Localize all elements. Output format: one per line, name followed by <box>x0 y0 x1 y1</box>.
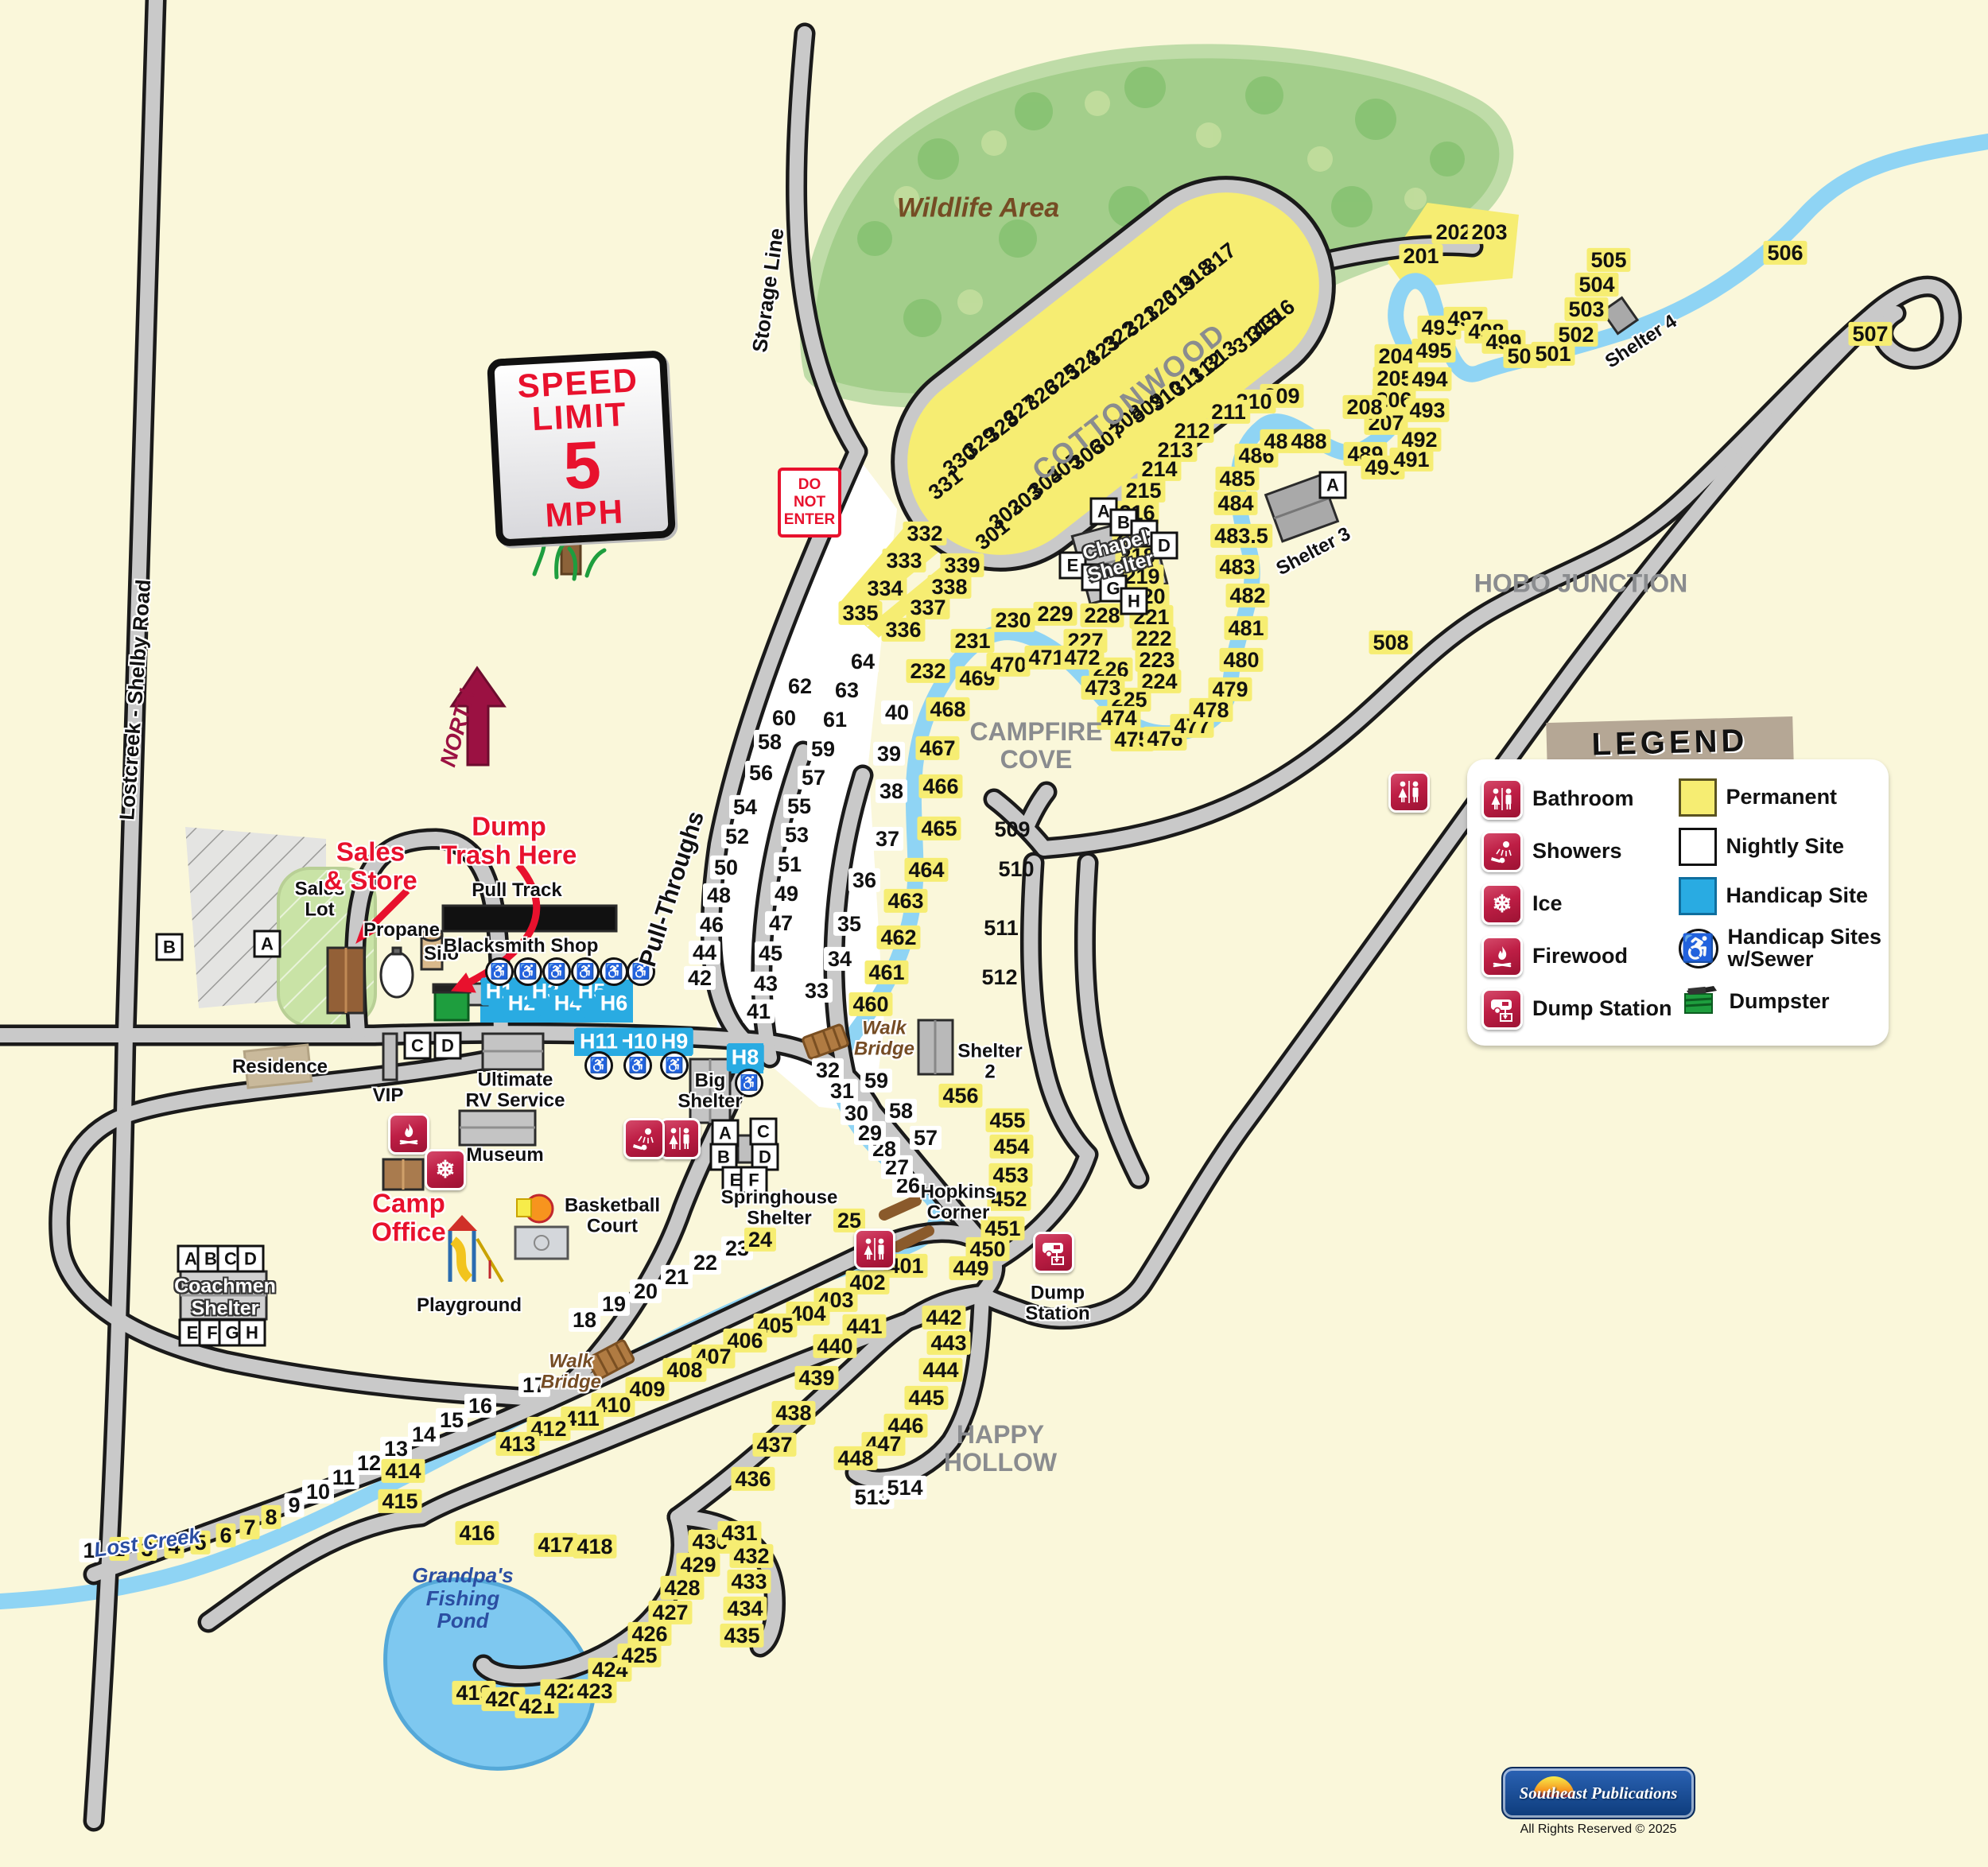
site-35: 35 <box>833 912 865 936</box>
ice-icon: ❄ <box>1481 883 1523 925</box>
site-16: 16 <box>464 1394 496 1418</box>
site-425: 425 <box>617 1644 661 1667</box>
marker-D: D <box>1151 532 1178 560</box>
handicap-icon: ♿ <box>1679 929 1718 968</box>
label-hopkins-corner: Hopkins Corner <box>921 1182 996 1225</box>
label-campfire-cove: CAMPFIRE COVE <box>969 718 1102 774</box>
dumpstation-icon <box>1033 1232 1074 1273</box>
site-485: 485 <box>1215 467 1259 491</box>
site-503: 503 <box>1564 297 1608 321</box>
site-423: 423 <box>573 1679 616 1703</box>
bathroom-icon <box>1481 778 1523 820</box>
site-334: 334 <box>863 576 907 600</box>
site-37: 37 <box>872 827 903 851</box>
site-506: 506 <box>1763 241 1807 265</box>
wheelchair-icon: ♿ <box>542 957 571 986</box>
site-478: 478 <box>1189 698 1233 722</box>
site-22: 22 <box>689 1251 721 1275</box>
speed-limit-sign: SPEED LIMIT 5 MPH <box>487 350 676 547</box>
site-50: 50 <box>710 856 742 879</box>
site-338: 338 <box>927 575 971 599</box>
site-60: 60 <box>768 706 800 730</box>
legend-label: Nightly Site <box>1726 836 1845 858</box>
playground <box>448 1215 503 1282</box>
site-58: 58 <box>885 1099 917 1123</box>
site-495: 495 <box>1411 339 1455 363</box>
site-428: 428 <box>660 1576 704 1600</box>
site-62: 62 <box>784 674 816 698</box>
site-417: 417 <box>534 1533 577 1557</box>
site-514: 514 <box>883 1476 926 1500</box>
publisher-name: Southeast Publications <box>1520 1784 1678 1803</box>
label-big-shelter: Big Shelter <box>678 1071 742 1113</box>
site-43: 43 <box>750 972 782 996</box>
site-443: 443 <box>926 1331 970 1355</box>
site-507: 507 <box>1848 322 1892 346</box>
site-450: 450 <box>965 1237 1009 1261</box>
site-480: 480 <box>1219 648 1263 672</box>
site-482: 482 <box>1225 584 1269 607</box>
site-51: 51 <box>774 852 806 876</box>
site-63: 63 <box>831 678 863 702</box>
site-505: 505 <box>1586 248 1630 272</box>
shower-icon <box>1481 831 1523 872</box>
handicap-site-H8: H8 <box>727 1044 764 1072</box>
site-33: 33 <box>801 979 833 1003</box>
site-432: 432 <box>729 1544 773 1568</box>
site-52: 52 <box>721 825 753 848</box>
legend: LEGEND BathroomShowers❄IceFirewoodDump S… <box>1467 720 1889 1046</box>
legend-item-showers: Showers <box>1481 831 1672 872</box>
site-222: 222 <box>1132 627 1175 650</box>
site-223: 223 <box>1135 648 1178 672</box>
legend-label: Ice <box>1532 893 1563 915</box>
site-45: 45 <box>755 941 786 965</box>
handicap-site-H6: H6 <box>596 990 633 1018</box>
site-504: 504 <box>1574 273 1618 297</box>
site-510: 510 <box>994 857 1038 881</box>
site-55: 55 <box>783 794 815 818</box>
site-9: 9 <box>284 1493 304 1517</box>
site-483: 483 <box>1215 555 1259 579</box>
site-41: 41 <box>743 999 775 1023</box>
site-32: 32 <box>812 1058 844 1082</box>
legend-item-ice: ❄Ice <box>1481 883 1672 925</box>
legend-item-handicap-sites-w-sewer: ♿Handicap Sites w/Sewer <box>1679 926 1882 970</box>
label-shelter-2: Shelter 2 <box>957 1042 1022 1084</box>
sw-w-swatch <box>1679 828 1717 866</box>
site-483.5: 483.5 <box>1210 524 1272 548</box>
legend-label: Showers <box>1532 840 1622 863</box>
dumpstation-icon <box>1481 988 1523 1030</box>
speed-sign-line3: MPH <box>545 495 625 532</box>
legend-label: Handicap Site <box>1726 885 1869 907</box>
site-15: 15 <box>436 1408 468 1432</box>
site-431: 431 <box>717 1521 761 1545</box>
site-466: 466 <box>918 774 962 798</box>
label-vip: VIP <box>373 1085 404 1106</box>
site-509: 509 <box>990 817 1034 841</box>
campground-map: SPEED LIMIT 5 MPH DO NOT ENTER LEGEND Ba… <box>0 0 1988 1867</box>
site-493: 493 <box>1405 398 1449 422</box>
site-444: 444 <box>918 1358 962 1382</box>
site-333: 333 <box>882 549 926 573</box>
site-508: 508 <box>1369 631 1412 654</box>
site-337: 337 <box>906 596 949 619</box>
site-492: 492 <box>1397 428 1441 452</box>
site-511: 511 <box>980 916 1023 940</box>
wheelchair-icon: ♿ <box>584 1051 613 1080</box>
site-465: 465 <box>917 817 961 840</box>
marker-A: A <box>1319 472 1347 499</box>
site-468: 468 <box>926 697 969 721</box>
site-448: 448 <box>833 1446 877 1470</box>
site-59: 59 <box>860 1069 892 1093</box>
label-propane: Propane <box>363 920 440 941</box>
legend-item-handicap-site: Handicap Site <box>1679 877 1882 915</box>
label-playground: Playground <box>417 1295 522 1316</box>
label-camp-office: Camp Office <box>371 1190 446 1248</box>
do-not-enter-sign: DO NOT ENTER <box>778 468 841 538</box>
sw-y-swatch <box>1679 778 1717 817</box>
legend-item-nightly-site: Nightly Site <box>1679 828 1882 866</box>
firewood-icon <box>388 1113 429 1155</box>
label-coachmen-shelter: Coachmen Shelter <box>174 1276 276 1320</box>
sw-b-swatch <box>1679 877 1717 915</box>
site-215: 215 <box>1121 479 1165 503</box>
site-436: 436 <box>731 1467 775 1491</box>
site-38: 38 <box>876 779 907 803</box>
bathroom-icon <box>1388 771 1430 813</box>
site-336: 336 <box>881 618 925 642</box>
site-21: 21 <box>661 1265 693 1289</box>
ice-icon: ❄ <box>425 1149 466 1190</box>
legend-title: LEGEND <box>1591 723 1749 763</box>
label-pull-track: Pull Track <box>472 880 561 901</box>
site-201: 201 <box>1399 244 1442 268</box>
site-416: 416 <box>455 1521 499 1545</box>
legend-label: Firewood <box>1532 945 1628 968</box>
site-473: 473 <box>1081 676 1124 700</box>
legend-label: Handicap Sites w/Sewer <box>1728 926 1882 970</box>
site-488: 488 <box>1287 429 1330 453</box>
site-53: 53 <box>781 823 813 847</box>
marker-D: D <box>237 1245 265 1273</box>
site-54: 54 <box>729 795 761 819</box>
site-481: 481 <box>1224 616 1268 640</box>
label-springhouse-shelter: Springhouse Shelter <box>721 1188 838 1230</box>
site-434: 434 <box>723 1597 767 1621</box>
site-332: 332 <box>903 522 946 545</box>
legend-panel: BathroomShowers❄IceFirewoodDump Station … <box>1467 759 1889 1046</box>
site-413: 413 <box>495 1432 539 1456</box>
wheelchair-icon: ♿ <box>571 957 600 986</box>
publisher-logo: Southeast Publications <box>1501 1767 1695 1819</box>
site-230: 230 <box>991 608 1035 632</box>
wheelchair-icon: ♿ <box>514 957 542 986</box>
site-47: 47 <box>765 911 797 935</box>
site-427: 427 <box>648 1601 692 1624</box>
site-34: 34 <box>824 947 856 971</box>
shower-icon <box>623 1118 665 1159</box>
marker-H: H <box>239 1319 266 1347</box>
bathroom-icon <box>659 1118 701 1159</box>
site-426: 426 <box>627 1622 671 1646</box>
site-429: 429 <box>676 1553 720 1577</box>
site-64: 64 <box>847 650 879 673</box>
site-339: 339 <box>940 553 984 577</box>
site-19: 19 <box>598 1292 630 1316</box>
label-grandpa-s-fishing-pond: Grandpa's Fishing Pond <box>412 1564 514 1632</box>
site-442: 442 <box>922 1306 965 1329</box>
label-basketball-court: Basketball Court <box>565 1196 660 1238</box>
legend-label: Permanent <box>1726 786 1838 809</box>
site-441: 441 <box>842 1314 886 1338</box>
marker-H: H <box>1120 588 1148 615</box>
site-408: 408 <box>662 1358 706 1382</box>
legend-label: Bathroom <box>1532 788 1634 810</box>
site-433: 433 <box>727 1570 771 1593</box>
site-474: 474 <box>1097 706 1140 730</box>
label-dump-station: Dump Station <box>1025 1283 1089 1326</box>
firewood-icon <box>1481 936 1523 977</box>
site-512: 512 <box>977 965 1021 989</box>
label-blacksmith-shop: Blacksmith Shop <box>444 936 599 957</box>
legend-item-dump-station: Dump Station <box>1481 988 1672 1030</box>
site-30: 30 <box>841 1101 872 1125</box>
site-48: 48 <box>703 883 735 907</box>
site-479: 479 <box>1208 677 1252 701</box>
site-31: 31 <box>826 1079 858 1103</box>
label-wildlife-area: Wildlife Area <box>897 193 1059 223</box>
site-57: 57 <box>910 1126 942 1150</box>
site-415: 415 <box>378 1489 421 1513</box>
site-460: 460 <box>848 992 892 1016</box>
site-418: 418 <box>573 1535 616 1558</box>
site-229: 229 <box>1033 602 1077 626</box>
legend-label: Dumpster <box>1730 991 1830 1013</box>
wheelchair-icon: ♿ <box>485 957 514 986</box>
site-438: 438 <box>771 1401 815 1425</box>
label-residence: Residence <box>232 1057 328 1077</box>
label-ultimate-rv-service: Ultimate RV Service <box>466 1070 565 1112</box>
site-463: 463 <box>883 889 927 913</box>
legend-item-permanent: Permanent <box>1679 778 1882 817</box>
site-24: 24 <box>744 1228 776 1252</box>
label-dump-trash-here: Dump Trash Here <box>441 813 577 871</box>
marker-D: D <box>434 1032 462 1060</box>
site-467: 467 <box>915 736 959 760</box>
site-36: 36 <box>848 868 880 892</box>
legend-item-dumpster: Dumpster <box>1679 981 1882 1022</box>
site-470: 470 <box>986 653 1030 677</box>
site-461: 461 <box>864 961 908 984</box>
site-203: 203 <box>1467 220 1511 244</box>
site-59: 59 <box>807 737 839 761</box>
site-18: 18 <box>569 1308 600 1332</box>
marker-C: C <box>750 1118 778 1146</box>
site-445: 445 <box>904 1386 948 1410</box>
wheelchair-icon: ♿ <box>623 1051 652 1080</box>
site-58: 58 <box>754 730 786 754</box>
dumpster-icon <box>1679 981 1720 1022</box>
site-49: 49 <box>771 882 802 906</box>
site-335: 335 <box>838 601 882 625</box>
bathroom-icon <box>854 1228 895 1270</box>
label-hobo-junction: HOBO JUNCTION <box>1474 569 1687 597</box>
label-walk-bridge: Walk Bridge <box>541 1352 601 1394</box>
label-museum: Museum <box>466 1145 543 1166</box>
legend-item-firewood: Firewood <box>1481 936 1672 977</box>
site-208: 208 <box>1342 395 1386 419</box>
site-454: 454 <box>989 1135 1033 1159</box>
site-472: 472 <box>1060 646 1104 670</box>
site-228: 228 <box>1080 604 1124 627</box>
site-57: 57 <box>798 766 829 790</box>
site-232: 232 <box>906 659 949 683</box>
site-214: 214 <box>1137 457 1181 481</box>
site-20: 20 <box>630 1279 662 1303</box>
site-437: 437 <box>752 1433 796 1457</box>
marker-A: A <box>254 930 282 958</box>
site-494: 494 <box>1408 367 1451 391</box>
site-7: 7 <box>239 1516 259 1539</box>
copyright-text: All Rights Reserved © 2025 <box>1503 1822 1694 1837</box>
site-61: 61 <box>819 708 851 732</box>
site-456: 456 <box>938 1084 982 1108</box>
site-6: 6 <box>215 1523 235 1547</box>
site-8: 8 <box>261 1505 281 1529</box>
legend-label: Dump Station <box>1532 998 1672 1020</box>
site-484: 484 <box>1213 491 1257 515</box>
label-walk-bridge: Walk Bridge <box>854 1019 914 1061</box>
site-439: 439 <box>794 1366 838 1390</box>
site-39: 39 <box>873 742 905 766</box>
marker-B: B <box>156 933 184 961</box>
site-502: 502 <box>1554 323 1598 347</box>
site-44: 44 <box>689 941 720 965</box>
site-455: 455 <box>985 1108 1029 1132</box>
legend-item-bathroom: Bathroom <box>1481 778 1672 820</box>
site-414: 414 <box>381 1459 425 1483</box>
site-56: 56 <box>745 761 777 785</box>
marker-C: C <box>404 1032 432 1060</box>
site-464: 464 <box>904 858 948 882</box>
label-sales-store: Sales & Store <box>324 838 417 896</box>
label-happy-hollow: HAPPY HOLLOW <box>944 1421 1057 1477</box>
wheelchair-icon: ♿ <box>600 957 628 986</box>
site-40: 40 <box>881 701 913 724</box>
site-435: 435 <box>720 1624 763 1648</box>
site-46: 46 <box>696 913 728 937</box>
speed-sign-number: 5 <box>562 431 603 499</box>
site-42: 42 <box>684 966 716 990</box>
basketball-court <box>515 1195 568 1259</box>
site-231: 231 <box>950 629 994 653</box>
site-462: 462 <box>876 926 920 949</box>
